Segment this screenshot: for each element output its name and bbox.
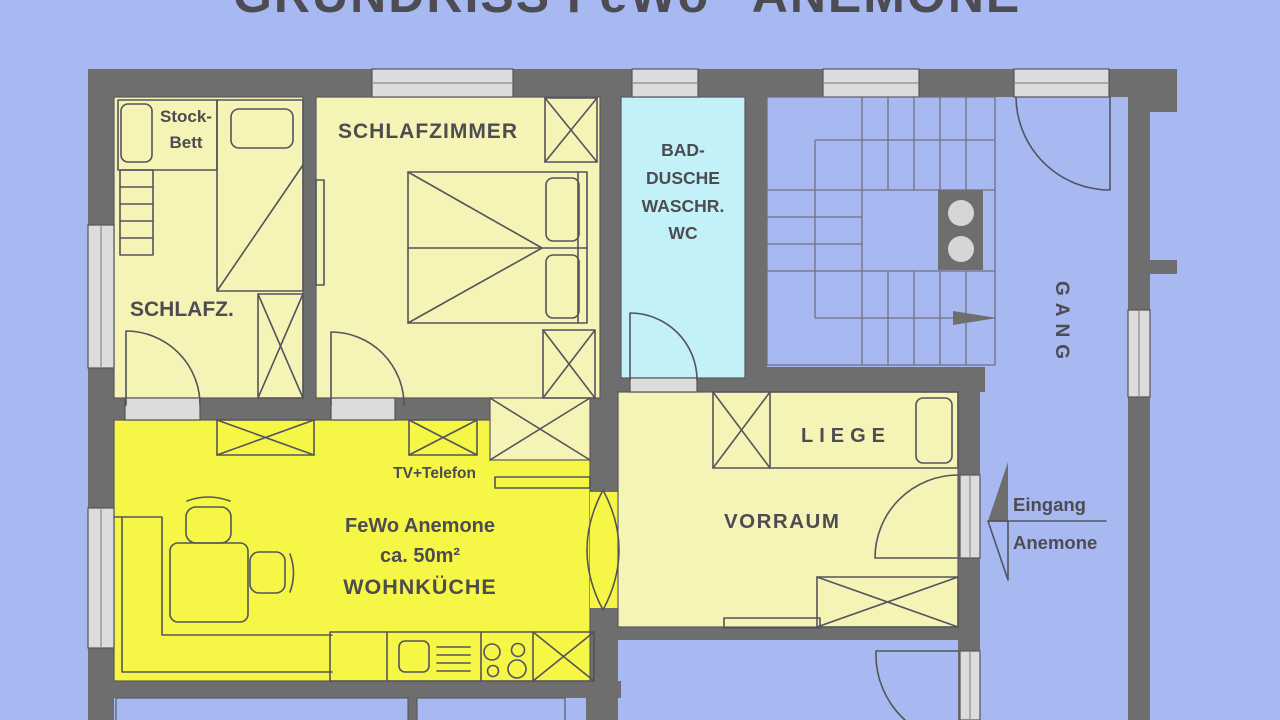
label-area: ca. 50m² [380,545,460,567]
floorplan-page: GRUNDRISS FeWo "ANEMONE" [0,0,1280,720]
label-fewo: FeWo Anemone [345,515,495,537]
stair-post-icon [948,236,974,262]
door-threshold-bad [630,378,697,392]
label-gang: GANG [1051,281,1072,366]
label-bad-2: DUSCHE [646,168,720,188]
door-threshold-schlafz [125,398,200,420]
room-below-left [116,698,408,720]
label-bad-3: WASCHR. [642,196,725,216]
label-schlafz: SCHLAFZ. [130,298,234,321]
label-vorraum: VORRAUM [724,510,840,533]
label-stockbett-1: Stock- [160,107,212,126]
label-stockbett-2: Bett [169,133,202,152]
floor-plan: GRUNDRISS FeWo "ANEMONE" [0,0,1280,720]
label-bad-4: WC [668,223,698,243]
room-below-mid [417,698,565,720]
label-liege: LIEGE [801,425,891,447]
label-eingang-2: Anemone [1013,532,1097,553]
label-wohnkueche: WOHNKÜCHE [343,574,497,599]
label-bad-1: BAD- [661,140,705,160]
door-threshold-schlafzimmer [331,398,395,420]
label-eingang-1: Eingang [1013,494,1086,515]
page-title: GRUNDRISS FeWo "ANEMONE" [233,0,1047,23]
label-tv-telefon: TV+Telefon [393,465,476,482]
room-schlafz [114,97,303,398]
label-schlafzimmer: SCHLAFZIMMER [338,120,518,143]
stair-post-icon [948,200,974,226]
